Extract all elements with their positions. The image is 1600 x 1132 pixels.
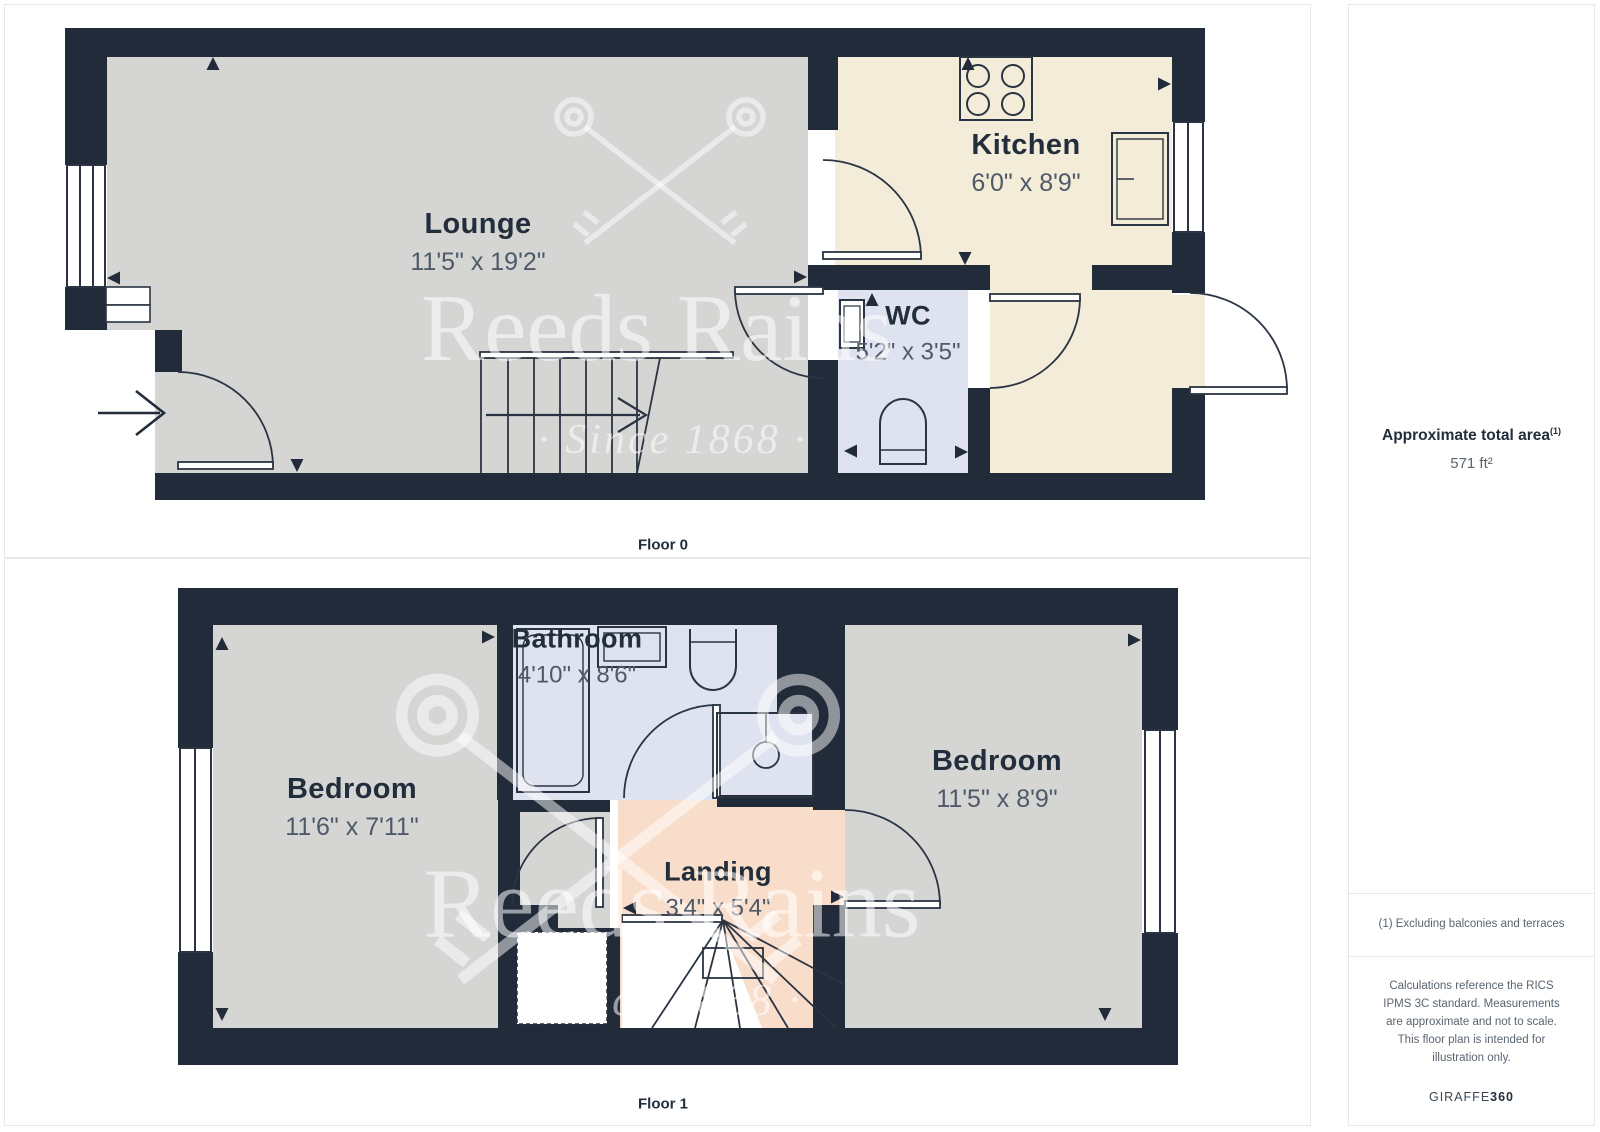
room-dimensions: 4'10" x 8'6" bbox=[512, 661, 643, 689]
room-dimensions: 11'5" x 19'2" bbox=[410, 248, 545, 277]
room-label-wc: WC 5'2" x 3'5" bbox=[856, 302, 961, 367]
giraffe360-logo-suffix: 360 bbox=[1490, 1090, 1514, 1104]
floor1-caption: Floor 1 bbox=[638, 1096, 688, 1113]
floorplan-page: Lounge 11'5" x 19'2" Kitchen 6'0" x 8'9"… bbox=[0, 0, 1600, 1132]
lounge-window bbox=[67, 165, 105, 287]
room-name: Bathroom bbox=[512, 625, 643, 655]
bedroom-left-window bbox=[180, 748, 211, 952]
room-name: Bedroom bbox=[932, 746, 1062, 778]
entry-steps bbox=[106, 287, 150, 322]
room-name: Bedroom bbox=[285, 774, 418, 806]
cupboard bbox=[517, 932, 607, 1024]
room-name: Kitchen bbox=[971, 130, 1080, 162]
room-dimensions: 11'6" x 7'11" bbox=[285, 813, 418, 842]
floor0-rooms bbox=[65, 57, 1205, 500]
room-label-lounge: Lounge 11'5" x 19'2" bbox=[410, 209, 545, 277]
footnote-text: (1) Excluding balconies and terraces bbox=[1352, 916, 1590, 934]
total-area-value: 571 ft² bbox=[1450, 455, 1493, 472]
total-area-label: Approximate total area(1) bbox=[1382, 426, 1561, 445]
room-label-kitchen: Kitchen 6'0" x 8'9" bbox=[971, 130, 1080, 198]
room-label-bedroom-right: Bedroom 11'5" x 8'9" bbox=[932, 746, 1062, 814]
room-dimensions: 3'4" x 5'4" bbox=[664, 894, 772, 922]
room-dimensions: 6'0" x 8'9" bbox=[971, 169, 1080, 198]
room-name: Lounge bbox=[410, 209, 545, 241]
room-name: Landing bbox=[664, 858, 772, 888]
bedroom-right-window bbox=[1145, 730, 1175, 933]
exterior-cutout bbox=[65, 330, 155, 500]
room-label-bathroom: Bathroom 4'10" x 8'6" bbox=[512, 625, 643, 690]
total-area-note-ref: (1) bbox=[1550, 426, 1561, 436]
giraffe360-logo-text: GIRAFFE bbox=[1429, 1090, 1490, 1104]
sidebar-footnote-box: (1) Excluding balconies and terraces bbox=[1348, 893, 1595, 957]
room-label-bedroom-left: Bedroom 11'6" x 7'11" bbox=[285, 774, 418, 842]
floor0-caption: Floor 0 bbox=[638, 537, 688, 554]
total-area-label-text: Approximate total area bbox=[1382, 427, 1550, 444]
disclaimer-text: Calculations reference the RICS IPMS 3C … bbox=[1349, 978, 1594, 1067]
bedroom-right-floor bbox=[845, 625, 1142, 1028]
floor0-plan bbox=[0, 0, 1312, 559]
room-label-landing: Landing 3'4" x 5'4" bbox=[664, 858, 772, 923]
kitchen-window bbox=[1174, 122, 1203, 232]
sidebar-disclaimer-box: Calculations reference the RICS IPMS 3C … bbox=[1348, 956, 1595, 1126]
room-dimensions: 11'5" x 8'9" bbox=[932, 785, 1062, 814]
giraffe360-logo: GIRAFFE360 bbox=[1429, 1090, 1514, 1104]
floor1-plan bbox=[0, 559, 1312, 1132]
backdoor-threshold bbox=[1172, 295, 1205, 388]
room-dimensions: 5'2" x 3'5" bbox=[856, 338, 961, 366]
sidebar-total-area-box: Approximate total area(1) 571 ft² bbox=[1348, 4, 1595, 894]
room-name: WC bbox=[856, 302, 961, 332]
